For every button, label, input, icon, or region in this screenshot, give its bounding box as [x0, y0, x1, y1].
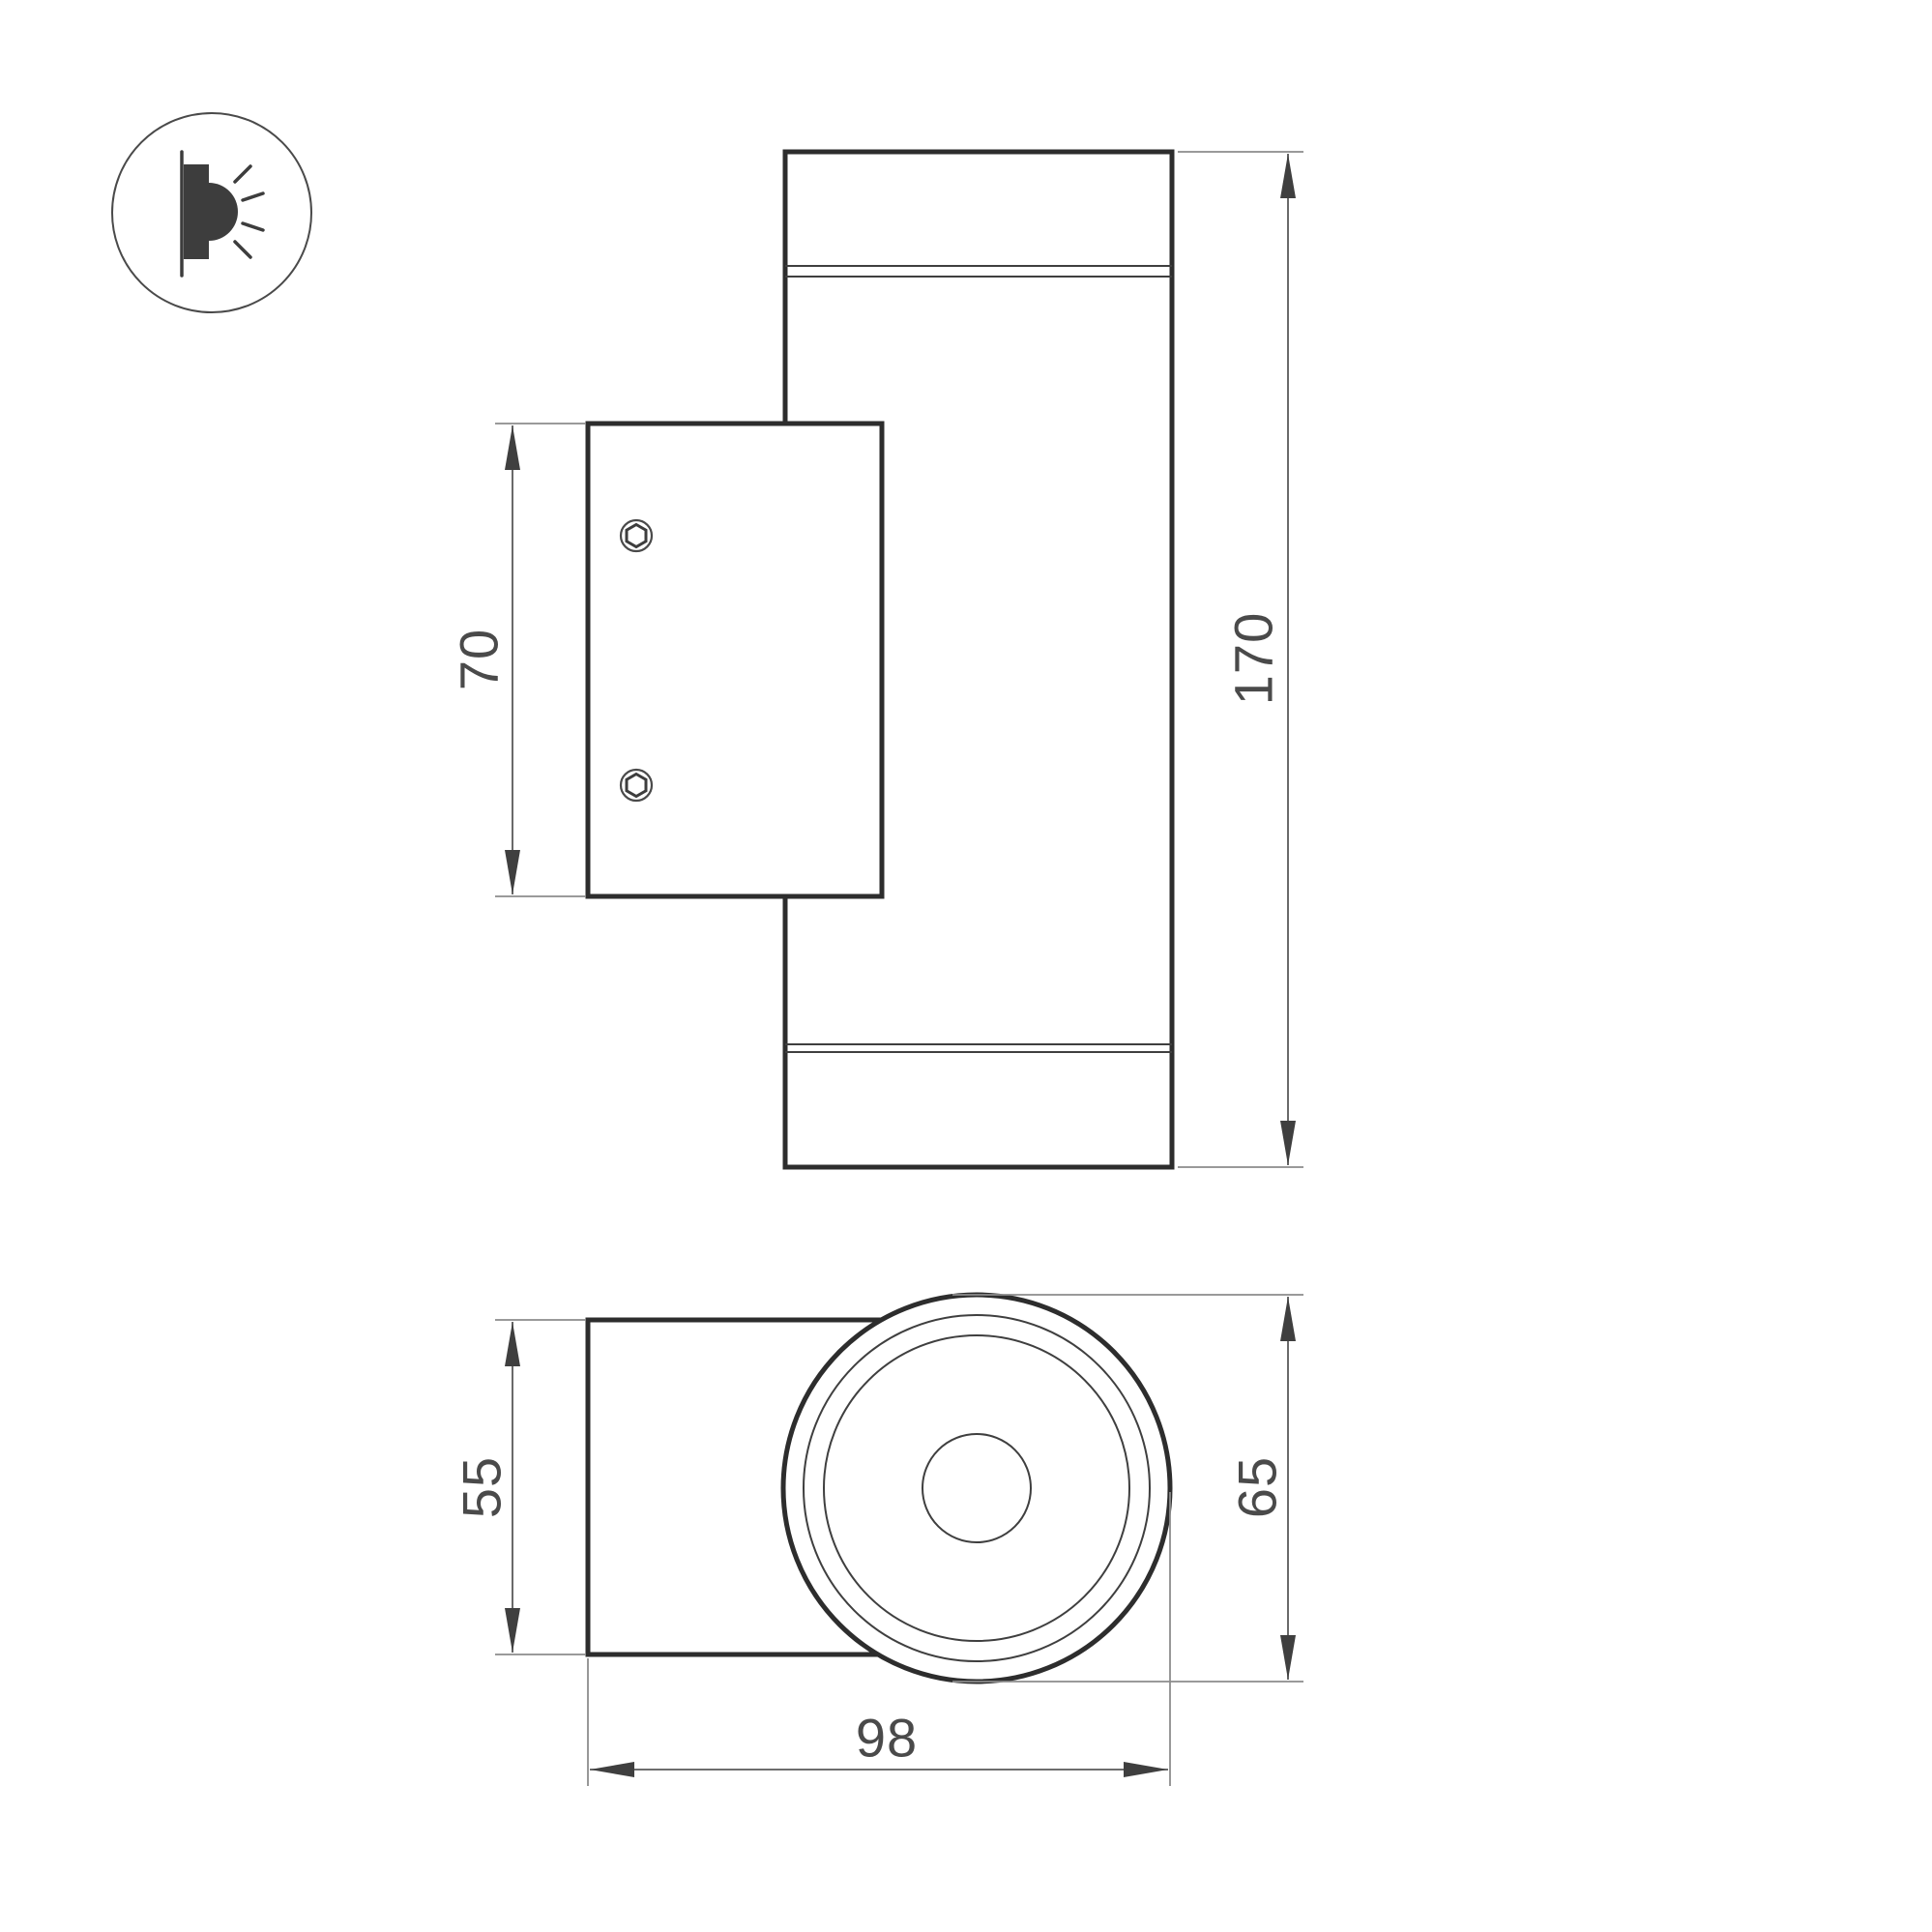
bottom-view-face-outer-circle — [783, 1295, 1170, 1682]
side-view-mounting-plate — [588, 424, 882, 896]
technical-drawing-svg: 70 170 55 — [0, 0, 1932, 1932]
bottom-view — [588, 1295, 1170, 1682]
dimension-label-55: 55 — [452, 1456, 512, 1518]
arrowhead-up — [1280, 154, 1296, 198]
arrowhead-up — [1280, 1297, 1296, 1341]
arrowhead-up — [505, 1322, 520, 1366]
dimension-total-height: 170 — [1178, 152, 1303, 1167]
arrowhead-down — [1280, 1121, 1296, 1165]
dimension-label-65: 65 — [1227, 1456, 1288, 1518]
side-view — [588, 152, 1172, 1167]
dimension-label-70: 70 — [449, 629, 510, 690]
mounting-screw-bottom — [621, 770, 652, 801]
mounting-screw-top — [621, 520, 652, 551]
arrowhead-down — [1280, 1635, 1296, 1680]
dimension-body-depth: 55 — [452, 1320, 587, 1654]
wall-light-side-emission-icon — [112, 113, 311, 312]
arrowhead-right — [1124, 1762, 1168, 1777]
dimension-label-170: 170 — [1223, 612, 1284, 705]
arrowhead-up — [505, 425, 520, 470]
arrowhead-down — [505, 1608, 520, 1653]
dimension-label-98: 98 — [856, 1708, 918, 1769]
arrowhead-down — [505, 850, 520, 894]
arrowhead-left — [590, 1762, 634, 1777]
icon-lamp-body — [184, 164, 209, 259]
dimension-plate-height: 70 — [449, 424, 587, 896]
drawing-canvas: 70 170 55 — [0, 0, 1932, 1932]
